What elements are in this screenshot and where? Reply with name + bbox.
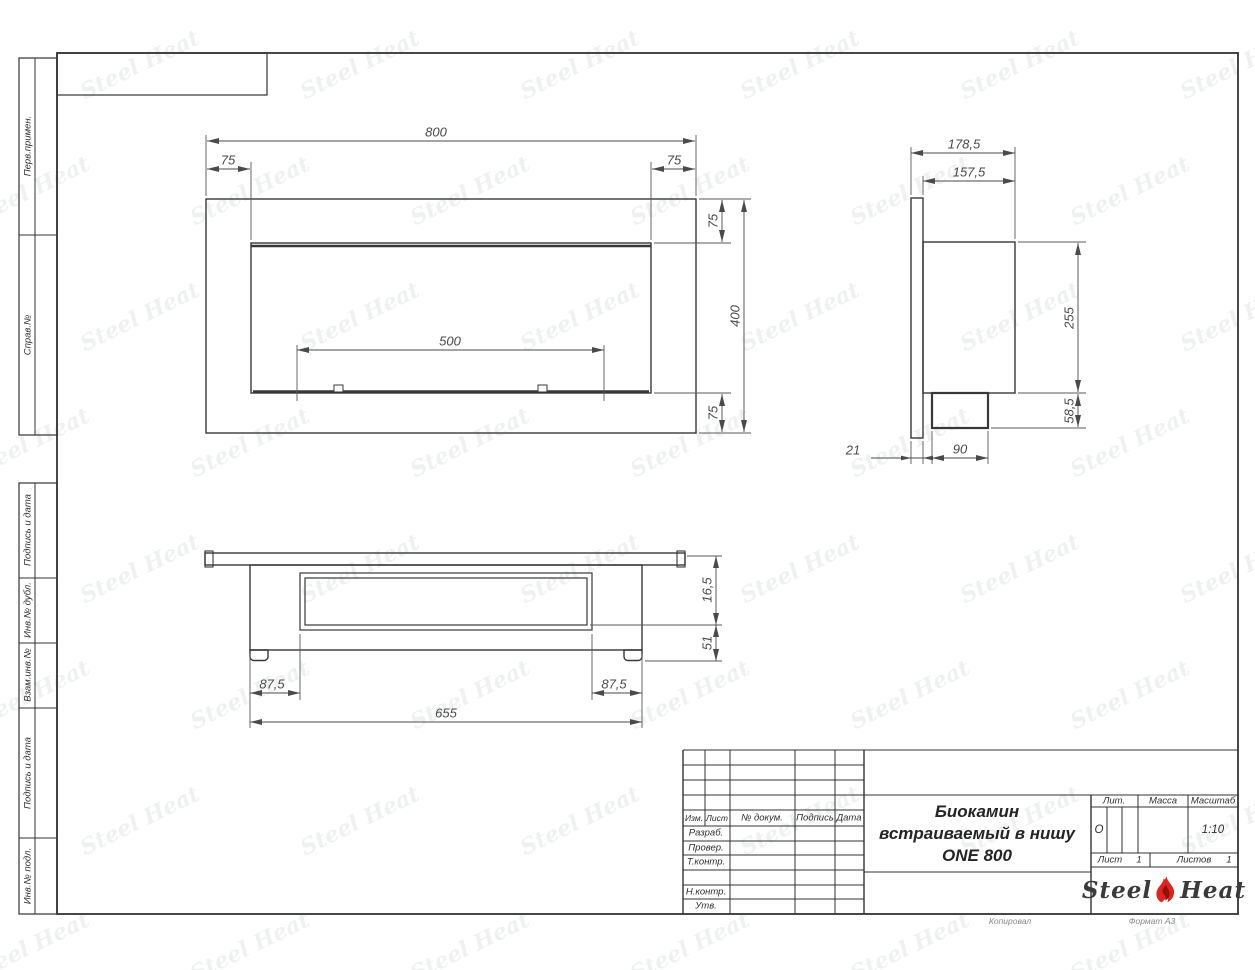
- steel-heat-logo: Steel Heat: [1082, 876, 1246, 904]
- dim-bottom-niche-width: 655: [435, 706, 457, 721]
- side-view-burner-box: [932, 393, 988, 428]
- sidebar-label-inv-dubl: Инв.№ дубл.: [23, 582, 34, 638]
- bottom-view: [205, 551, 685, 661]
- titleblock-col-doc: № докум.: [741, 813, 783, 824]
- copied-label: Копировал: [989, 916, 1031, 926]
- front-view-opening: [251, 243, 651, 393]
- titleblock-lit-value: О: [1095, 824, 1104, 836]
- document-title-line2: встраиваемый в нишу: [879, 824, 1075, 844]
- titleblock-col-sign: Подпись: [796, 813, 834, 824]
- side-view: [911, 198, 1015, 438]
- titleblock-row-tcontrol: Т.контр.: [687, 857, 725, 868]
- dim-side-body-depth: 157,5: [953, 165, 986, 180]
- document-title-line3: ONE 800: [942, 846, 1012, 866]
- titleblock-sheets-value: 1: [1226, 855, 1231, 866]
- side-view-body: [923, 242, 1015, 393]
- format-label: Формат А3: [1129, 916, 1176, 926]
- sheet-frame: [19, 53, 1238, 914]
- dim-front-left-offset: 75: [221, 153, 236, 168]
- titleblock-col-list: Лист: [706, 813, 728, 823]
- dim-front-right-offset: 75: [667, 153, 682, 168]
- dim-side-box-depth: 90: [953, 442, 968, 457]
- bottom-view-foot: [250, 650, 268, 661]
- logo-steel-text: Steel: [1082, 877, 1152, 904]
- front-view: [206, 199, 696, 433]
- flame-icon: [1155, 876, 1177, 904]
- sidebar-label-sprav-no: Справ.№: [23, 315, 34, 356]
- document-title-line1: Биокамин: [935, 802, 1019, 822]
- titleblock-col-izm: Изм.: [685, 813, 703, 823]
- titleblock-row-approved: Утв.: [695, 901, 717, 912]
- dim-side-flange-thickness: 21: [845, 443, 860, 458]
- titleblock-lit-label: Лит.: [1103, 796, 1125, 807]
- bottom-view-foot: [624, 650, 642, 661]
- titleblock-col-date: Дата: [836, 813, 861, 824]
- titleblock-sheet-value: 1: [1136, 855, 1141, 866]
- dim-front-total-width: 800: [425, 125, 447, 140]
- bottom-view-slot: [300, 573, 592, 630]
- bottom-view-flange: [205, 553, 685, 565]
- titleblock-sheet-label: Лист: [1098, 855, 1122, 866]
- sidebar-label-inv-podl: Инв.№ подл.: [23, 848, 34, 904]
- side-view-flange: [911, 198, 923, 438]
- dim-bottom-glass-offset: 16,5: [700, 577, 715, 603]
- logo-heat-text: Heat: [1180, 877, 1246, 904]
- dim-side-body-height: 255: [1062, 306, 1077, 329]
- dim-front-bottom-offset: 75: [706, 405, 721, 420]
- extension-lines: [206, 135, 1086, 728]
- titleblock-scale-label: Масштаб: [1191, 796, 1235, 807]
- dim-bottom-inner-depth: 51: [700, 636, 715, 650]
- dim-front-burner-width: 500: [439, 334, 461, 349]
- drawing-sheet: Steel HeatSteel HeatSteel HeatSteel Heat…: [0, 0, 1255, 970]
- dim-bottom-right-margin: 87,5: [601, 677, 627, 692]
- front-view-mount-tab: [538, 385, 547, 392]
- titleblock-scale-value: 1:10: [1202, 824, 1224, 836]
- front-view-outline: [206, 199, 696, 433]
- dim-side-bottom-height: 58,5: [1062, 398, 1077, 424]
- sidebar-label-perv-primen: Перв.примен.: [23, 116, 34, 177]
- sidebar-label-vzam-inv: Взам.инв.№: [23, 648, 34, 701]
- small-dim-21: [871, 456, 933, 461]
- titleblock-mass-label: Масса: [1149, 796, 1177, 807]
- titleblock-row-developed: Разраб.: [689, 828, 723, 839]
- titleblock-row-checked: Провер.: [688, 843, 723, 854]
- dim-bottom-left-margin: 87,5: [259, 677, 285, 692]
- dim-front-total-height: 400: [728, 304, 743, 326]
- front-view-mount-tab: [334, 385, 343, 392]
- dim-side-total-depth: 178,5: [948, 137, 981, 152]
- titleblock-row-ncontrol: Н.контр.: [686, 887, 726, 898]
- sidebar-label-podpis-data-1: Подпись и дата: [23, 494, 34, 566]
- titleblock-sheets-label: Листов: [1177, 855, 1212, 866]
- dim-front-top-offset: 75: [706, 213, 721, 228]
- sidebar-label-podpis-data-2: Подпись и дата: [23, 737, 34, 809]
